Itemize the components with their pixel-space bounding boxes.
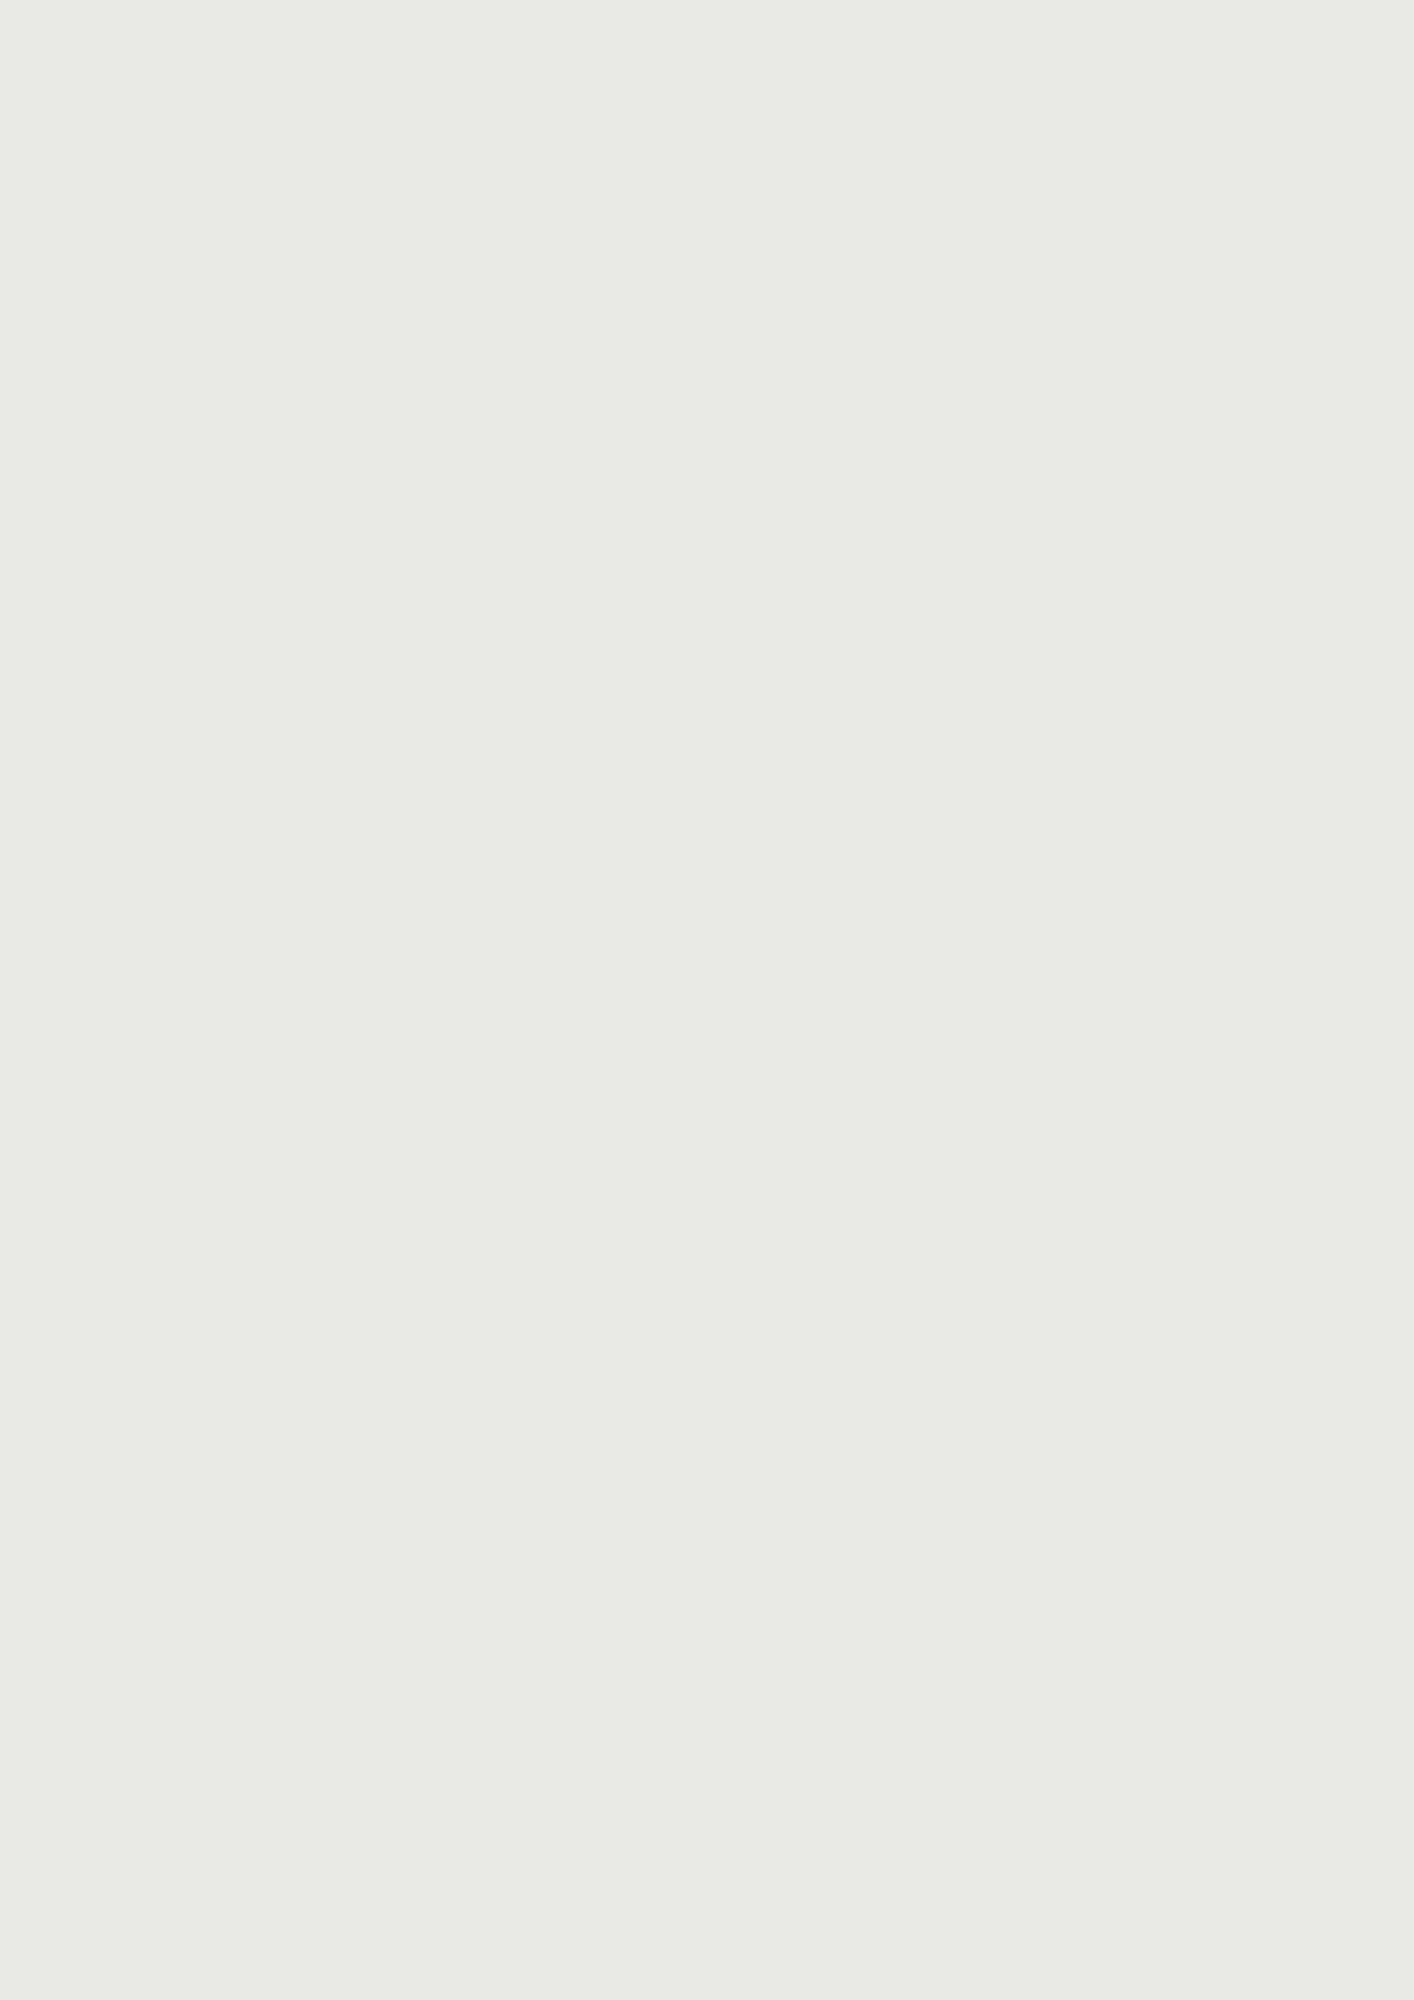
- map-graphics: [0, 0, 1414, 2000]
- masterplan-map: [0, 0, 1414, 2000]
